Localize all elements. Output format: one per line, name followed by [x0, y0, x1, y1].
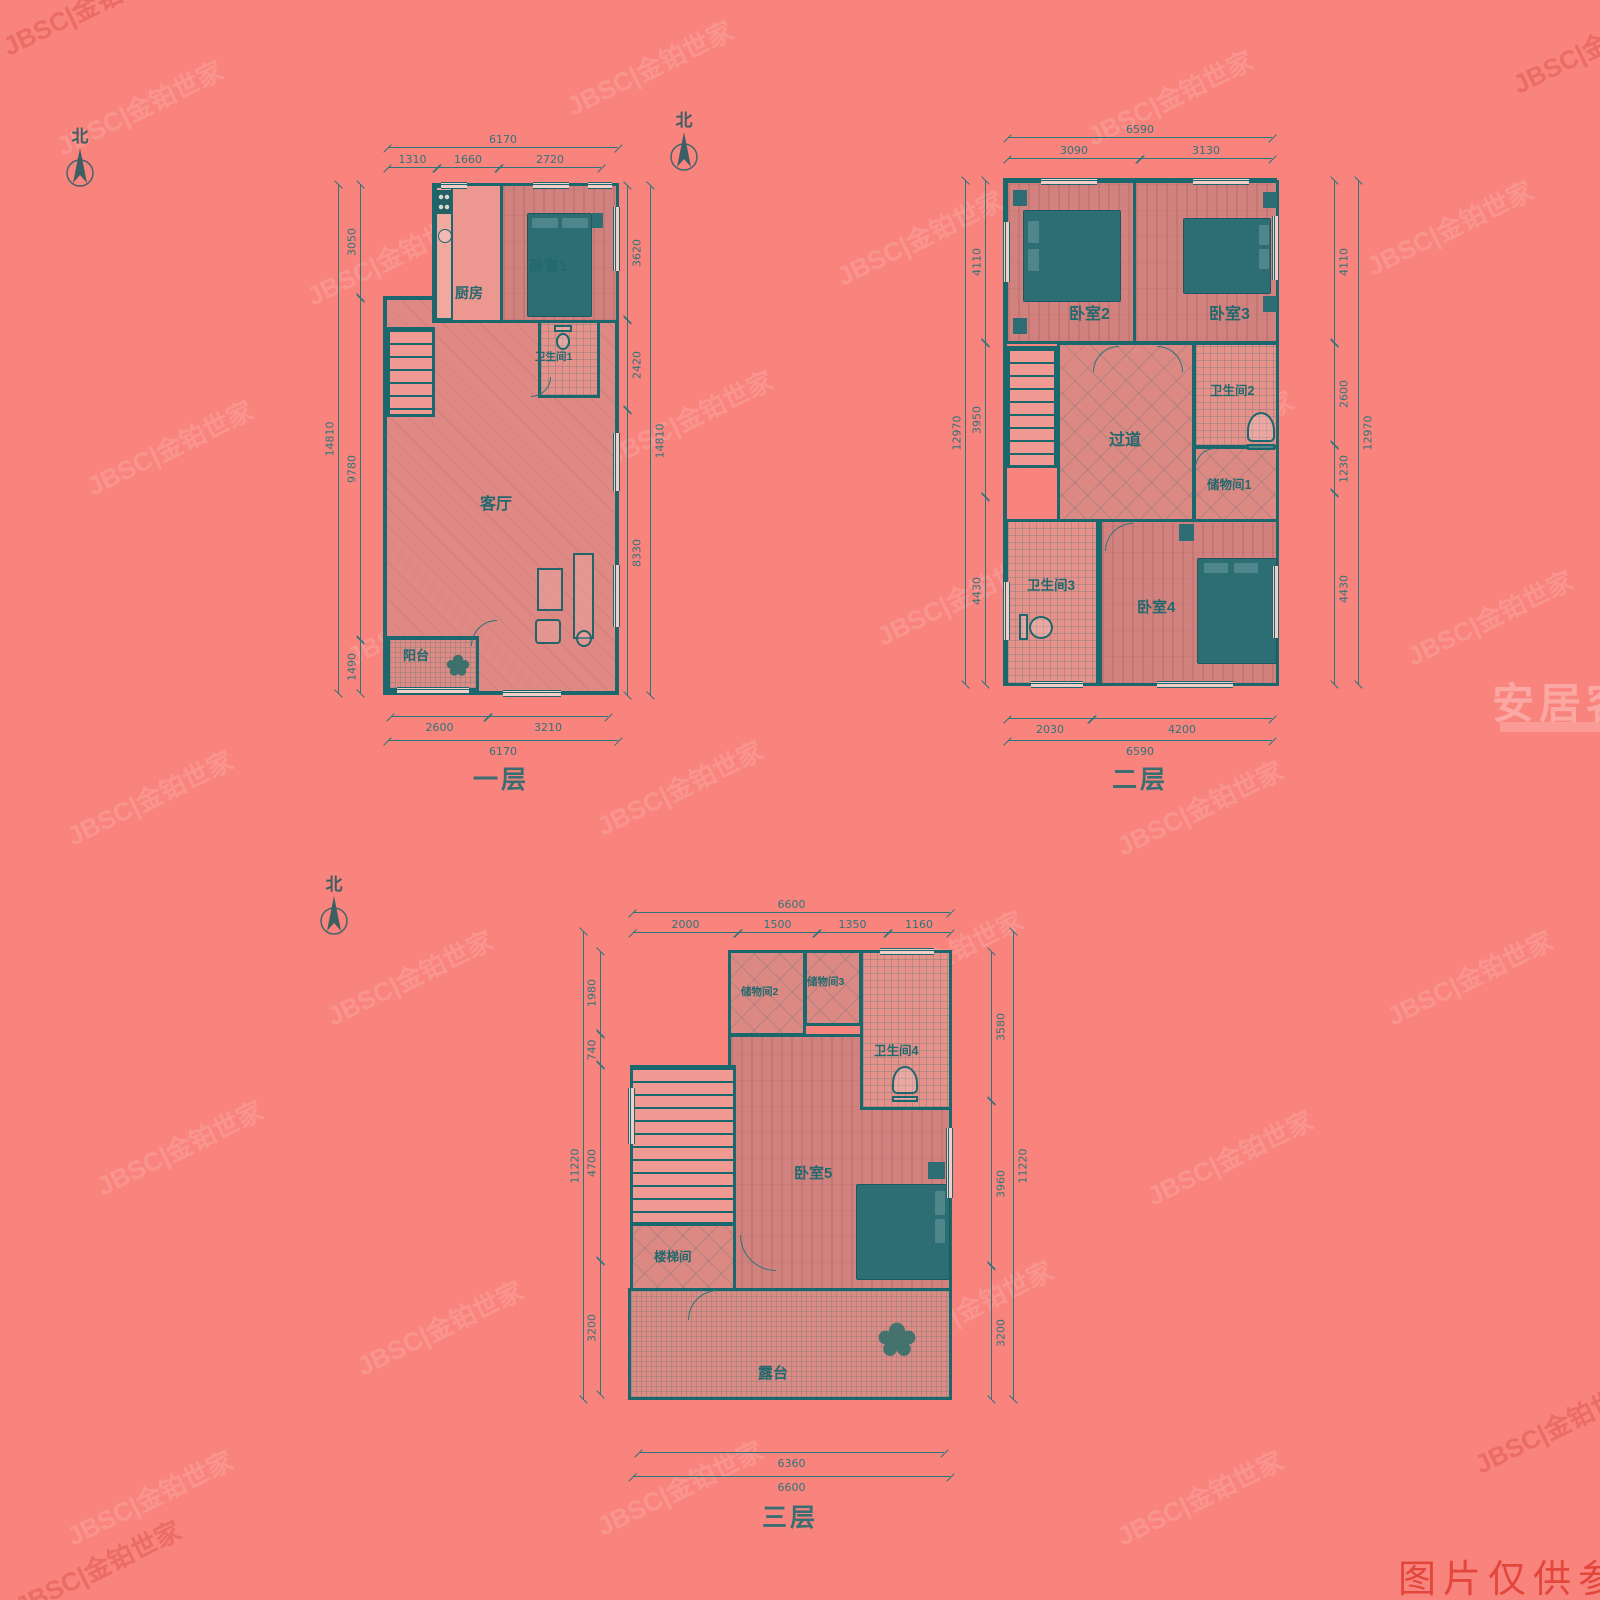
brand-watermark: JBSC|金铂世家	[0, 0, 175, 63]
dim-segment: 3960	[991, 1101, 992, 1266]
dim-label: 1980	[586, 979, 599, 1007]
dim-label: 4700	[586, 1149, 599, 1177]
dim-segment: 1660	[437, 167, 499, 168]
dim-label: 12970	[1362, 415, 1375, 450]
dim-label: 2600	[1338, 380, 1351, 408]
toilet-icon	[892, 1066, 918, 1094]
north-label: 北	[312, 876, 356, 894]
room-label-living: 客厅	[480, 490, 512, 514]
disclaimer-stamp: 图片仅供参考	[1398, 1548, 1600, 1600]
pillow	[1233, 562, 1259, 574]
room-label-stair-room: 楼梯间	[654, 1246, 692, 1265]
dim-label: 1160	[905, 918, 933, 931]
pillow	[1258, 248, 1270, 270]
dim-segment: 3950	[985, 343, 986, 497]
staircase	[1007, 346, 1057, 468]
window	[946, 1128, 953, 1198]
dim-label: 2420	[631, 351, 644, 379]
dim-segment: 3050	[360, 185, 361, 298]
nightstand	[1179, 524, 1194, 541]
dim-segment: 1500	[738, 932, 817, 933]
room-label-kitchen: 厨房	[455, 283, 483, 303]
armchair	[535, 619, 561, 644]
north-arrow: 北	[662, 112, 706, 177]
window	[1031, 681, 1083, 688]
dim-label: 1310	[399, 153, 427, 166]
brand-watermark: JBSC|金铂世家	[1468, 1369, 1600, 1481]
dim-label: 6360	[778, 1457, 806, 1470]
room-label-bedroom4: 卧室4	[1137, 596, 1175, 617]
brand-watermark: JBSC|金铂世家	[1140, 1101, 1319, 1213]
room-label-balcony: 阳台	[403, 645, 429, 664]
room-label-storage1: 储物间1	[1207, 474, 1251, 493]
room-label-bedroom2: 卧室2	[1069, 300, 1110, 324]
brand-watermark: JBSC|金铂世家	[1400, 561, 1579, 673]
floor2-label: 二层	[1003, 760, 1277, 796]
dim-segment: 3620	[627, 186, 628, 320]
dim-segment: 1490	[360, 640, 361, 693]
dim-label: 3200	[995, 1319, 1008, 1347]
dim-label: 4430	[1338, 575, 1351, 603]
dim-label: 11220	[1017, 1148, 1030, 1183]
toilet-icon	[554, 325, 572, 332]
dim-label: 1230	[1338, 455, 1351, 483]
dim-segment: 2000	[633, 932, 738, 933]
dim-segment: 1980	[600, 952, 601, 1034]
staircase	[387, 327, 435, 417]
toilet-icon	[1019, 614, 1028, 640]
plant-icon	[874, 1318, 920, 1364]
dim-label: 1350	[839, 918, 867, 931]
north-arrow: 北	[312, 876, 356, 941]
brand-watermark: JBSC|金铂世家	[830, 181, 1009, 293]
dim-label: 11220	[569, 1148, 582, 1183]
brand-watermark: JBSC|金铂世家	[60, 1441, 239, 1553]
dim-label: 14810	[654, 423, 667, 458]
floor3-plan: 储物间2 储物间3 卫生间4 卧室5 楼梯间 露台	[628, 928, 952, 1400]
room-label-bath4: 卫生间4	[874, 1040, 918, 1059]
dim-label: 8330	[631, 539, 644, 567]
room-label-hallway: 过道	[1109, 426, 1141, 450]
dim-label: 1500	[764, 918, 792, 931]
dim-label: 3210	[534, 721, 562, 734]
pillow	[1258, 224, 1270, 246]
dim-segment: 3210	[488, 716, 608, 717]
brand-watermark: JBSC|金铂世家	[560, 11, 739, 123]
north-label: 北	[662, 112, 706, 130]
pillow	[1027, 220, 1040, 244]
floorplan-canvas: JBSC|金铂世家 JBSC|金铂世家 JBSC|金铂世家 JBSC|金铂世家 …	[0, 0, 1600, 1600]
plant-icon	[443, 651, 473, 681]
brand-watermark: JBSC|金铂世家	[1380, 921, 1559, 1033]
dim-top-total: 6170	[388, 147, 618, 148]
dim-label: 3580	[995, 1013, 1008, 1041]
dim-label: 2030	[1036, 723, 1064, 736]
dim-label: 9780	[346, 455, 359, 483]
compass-icon	[667, 130, 701, 172]
brand-watermark: JBSC|金铂世家	[350, 1271, 529, 1383]
room-label-bath2: 卫生间2	[1210, 380, 1254, 399]
dim-segment: 2420	[627, 320, 628, 410]
dim-label: 14810	[324, 422, 337, 457]
dim-label: 6590	[1126, 123, 1154, 136]
dim-label: 4110	[1338, 248, 1351, 276]
compass-icon	[63, 146, 97, 188]
window	[1272, 566, 1279, 638]
dim-label: 3620	[631, 239, 644, 267]
window	[1157, 681, 1233, 688]
window	[441, 182, 467, 189]
dim-label: 1490	[346, 653, 359, 681]
dim-segment: 1350	[817, 932, 888, 933]
room-label-bath1: 卫生间1	[535, 349, 572, 364]
room-label-bedroom1: 卧室1	[529, 255, 567, 276]
dim-segment: 9780	[360, 298, 361, 640]
window	[397, 687, 469, 694]
window	[880, 948, 934, 955]
dim-label: 2720	[536, 153, 564, 166]
dim-bottom-total: 6590	[1008, 740, 1272, 741]
brand-watermark: JBSC|金铂世家	[1110, 1441, 1289, 1553]
floor2-plan: 卧室2 卧室3 过道 卫生间2 储物间1 卫生间3 卧室4	[1003, 178, 1277, 686]
window	[1041, 178, 1097, 185]
nightstand	[1263, 192, 1277, 208]
brand-watermark: JBSC|金铂世家	[60, 741, 239, 853]
coffee-table	[576, 630, 592, 647]
dim-segment: 4700	[600, 1065, 601, 1261]
sofa	[573, 553, 594, 639]
brand-watermark: JBSC|金铂世家	[1360, 171, 1539, 283]
room-label-terrace: 露台	[758, 1362, 788, 1383]
bath3-room	[1005, 519, 1099, 686]
site-watermark-subtext	[1500, 722, 1600, 732]
brand-watermark: JBSC|金铂世家	[90, 1091, 269, 1203]
dim-left-total: 12970	[965, 181, 966, 684]
brand-watermark: JBSC|金铂世家	[1506, 0, 1600, 101]
dim-segment: 3090	[1008, 158, 1140, 159]
dim-label: 740	[586, 1039, 599, 1060]
dim-segment: 8330	[627, 410, 628, 695]
dim-label: 6170	[489, 133, 517, 146]
window	[533, 182, 569, 189]
room-label-storage3: 储物间3	[807, 974, 844, 989]
window	[503, 690, 561, 697]
dim-label: 3200	[586, 1314, 599, 1342]
dim-segment: 2030	[1008, 718, 1092, 719]
pillow	[531, 217, 559, 229]
room-label-bedroom5: 卧室5	[794, 1162, 832, 1183]
dim-right-total: 14810	[650, 186, 651, 695]
dim-label: 2600	[426, 721, 454, 734]
dim-segment: 2600	[391, 716, 488, 717]
dim-segment: 2600	[1334, 343, 1335, 445]
window	[1003, 582, 1010, 640]
dim-label: 12970	[951, 415, 964, 450]
dim-top-total: 6590	[1008, 137, 1272, 138]
dim-bottom-total: 6170	[388, 740, 618, 741]
room-label-bedroom3: 卧室3	[1209, 300, 1250, 324]
dim-segment: 4200	[1092, 718, 1272, 719]
nightstand	[1013, 190, 1027, 206]
toilet-icon	[1247, 444, 1275, 450]
dim-label: 6590	[1126, 745, 1154, 758]
staircase	[630, 1065, 736, 1225]
dim-left-total: 11220	[583, 932, 584, 1399]
dim-label: 3130	[1192, 144, 1220, 157]
pillow	[934, 1190, 946, 1216]
pillow	[1027, 248, 1040, 272]
brand-watermark: JBSC|金铂世家	[80, 391, 259, 503]
dim-segment: 1310	[388, 167, 437, 168]
dim-left-total: 14810	[338, 185, 339, 693]
dim-label: 3090	[1060, 144, 1088, 157]
floor3-label: 三层	[628, 1498, 952, 1534]
dim-right-total: 11220	[1013, 932, 1014, 1399]
nightstand	[928, 1162, 945, 1179]
window	[1003, 222, 1010, 282]
dim-label: 2000	[672, 918, 700, 931]
window	[613, 433, 620, 491]
pillow	[561, 217, 589, 229]
window	[613, 207, 620, 271]
dim-label: 6600	[778, 898, 806, 911]
nightstand	[1263, 296, 1277, 312]
pillow	[1203, 562, 1229, 574]
dim-segment: 4430	[1334, 493, 1335, 684]
stove-icon	[437, 190, 451, 214]
room-label-storage2: 储物间2	[741, 984, 778, 999]
dim-label: 4430	[971, 577, 984, 605]
dim-segment: 3200	[600, 1261, 601, 1394]
dim-label: 3950	[971, 406, 984, 434]
dim-segment: 2720	[499, 167, 601, 168]
window	[613, 565, 620, 627]
dim-segment: 4110	[1334, 181, 1335, 343]
sink-icon	[438, 229, 452, 243]
dim-label: 6600	[778, 1481, 806, 1494]
pillow	[934, 1218, 946, 1244]
window	[628, 1088, 635, 1144]
dim-label: 3960	[995, 1170, 1008, 1198]
dim-label: 4200	[1168, 723, 1196, 736]
dim-segment: 3200	[991, 1266, 992, 1399]
window	[1272, 216, 1279, 280]
toilet-icon	[892, 1096, 918, 1102]
dim-label: 4110	[971, 248, 984, 276]
dim-label: 3050	[346, 228, 359, 256]
dim-segment: 4430	[985, 497, 986, 684]
nightstand	[1013, 318, 1027, 334]
window	[588, 182, 612, 189]
north-arrow: 北	[58, 128, 102, 193]
dim-segment: 740	[600, 1034, 601, 1065]
compass-icon	[317, 894, 351, 936]
dim-right-total: 12970	[1358, 181, 1359, 684]
dim-segment: 4110	[985, 181, 986, 343]
toilet-icon	[556, 333, 570, 350]
dim-label: 6170	[489, 745, 517, 758]
brand-watermark: JBSC|金铂世家	[8, 1511, 187, 1600]
dim-segment: 3580	[991, 952, 992, 1101]
toilet-icon	[1247, 412, 1275, 442]
toilet-icon	[1029, 616, 1053, 639]
tv-cabinet	[537, 568, 563, 611]
dim-segment: 1230	[1334, 445, 1335, 493]
north-label: 北	[58, 128, 102, 146]
room-label-bath3: 卫生间3	[1027, 574, 1075, 594]
nightstand	[592, 213, 603, 228]
dim-bottom-total: 6600	[633, 1476, 950, 1477]
dim-label: 1660	[454, 153, 482, 166]
dim-segment: 1160	[888, 932, 950, 933]
dim-segment: 3130	[1140, 158, 1272, 159]
floor1-plan: 厨房 卧室1 卫生间1 客厅 阳台	[383, 183, 619, 695]
dim-bottom-inner: 6360	[639, 1452, 944, 1453]
floor1-label: 一层	[383, 760, 619, 796]
window	[1193, 178, 1249, 185]
dim-top-total: 6600	[633, 912, 950, 913]
